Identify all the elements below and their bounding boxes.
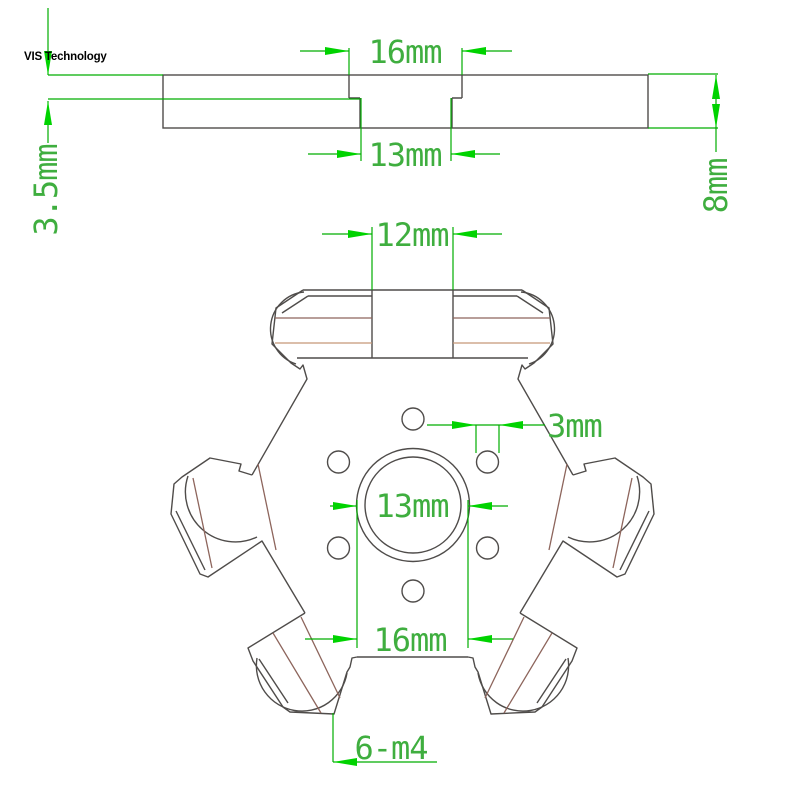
mount-hole [477,537,499,559]
side-view-outline [163,75,648,128]
small-hole-extensions [476,425,499,453]
middle-left-arm-outline [171,458,305,613]
slot-inner-walls [360,98,452,128]
middle-left-arm-inner-edge [176,511,205,570]
band-right-arc [521,292,554,364]
middle-right-arm-inner-edge [620,511,649,570]
thickness-extensions [648,74,718,128]
tab-side-edges [372,290,453,358]
band-left-arc [271,292,304,364]
mount-hole [328,537,350,559]
technical-drawing-canvas: VIS Technology 16mm 13mm 3.5mm 8mm 12mm … [0,0,800,800]
plate-body [163,75,648,128]
groove-outer-walls [349,75,462,98]
middle-right-arm-outline [520,458,654,613]
mount-hole [402,408,424,430]
dim-side-thickness-label: 8mm [701,141,731,231]
dim-plan-holes-callout-label: 6-m4 [341,733,441,763]
middle-right-arm-arc [568,476,640,542]
bottom-right-arm-grip-lines [485,617,552,713]
mount-hole [402,580,424,602]
middle-right-arm-grip-lines [549,464,632,568]
middle-left-arm-grip-lines [193,464,276,568]
dim-plan-center-bore-label: 13mm [362,491,462,521]
bottom-left-arm-outline [248,613,357,714]
bottom-left-arm-grip-lines [273,617,340,713]
dim-plan-tab-width-label: 12mm [362,220,462,250]
middle-left-arm-arc [185,476,257,542]
bottom-right-arm-outline [468,613,577,714]
effector-plate-drawing [0,0,800,800]
mount-hole [328,451,350,473]
dim-plan-bottom-width-label: 16mm [360,625,460,655]
bottom-left-arm-inner-edge [259,659,288,703]
watermark-text: VIS Technology [24,51,107,63]
dim-plan-small-hole-label: 3mm [547,411,602,441]
mount-hole [477,451,499,473]
dim-side-groove-width-label: 16mm [355,37,455,67]
dim-side-slot-width-label: 13mm [355,140,455,170]
dim-side-recess-depth-label: 3.5mm [31,135,61,245]
bottom-right-arm-inner-edge [537,659,566,703]
